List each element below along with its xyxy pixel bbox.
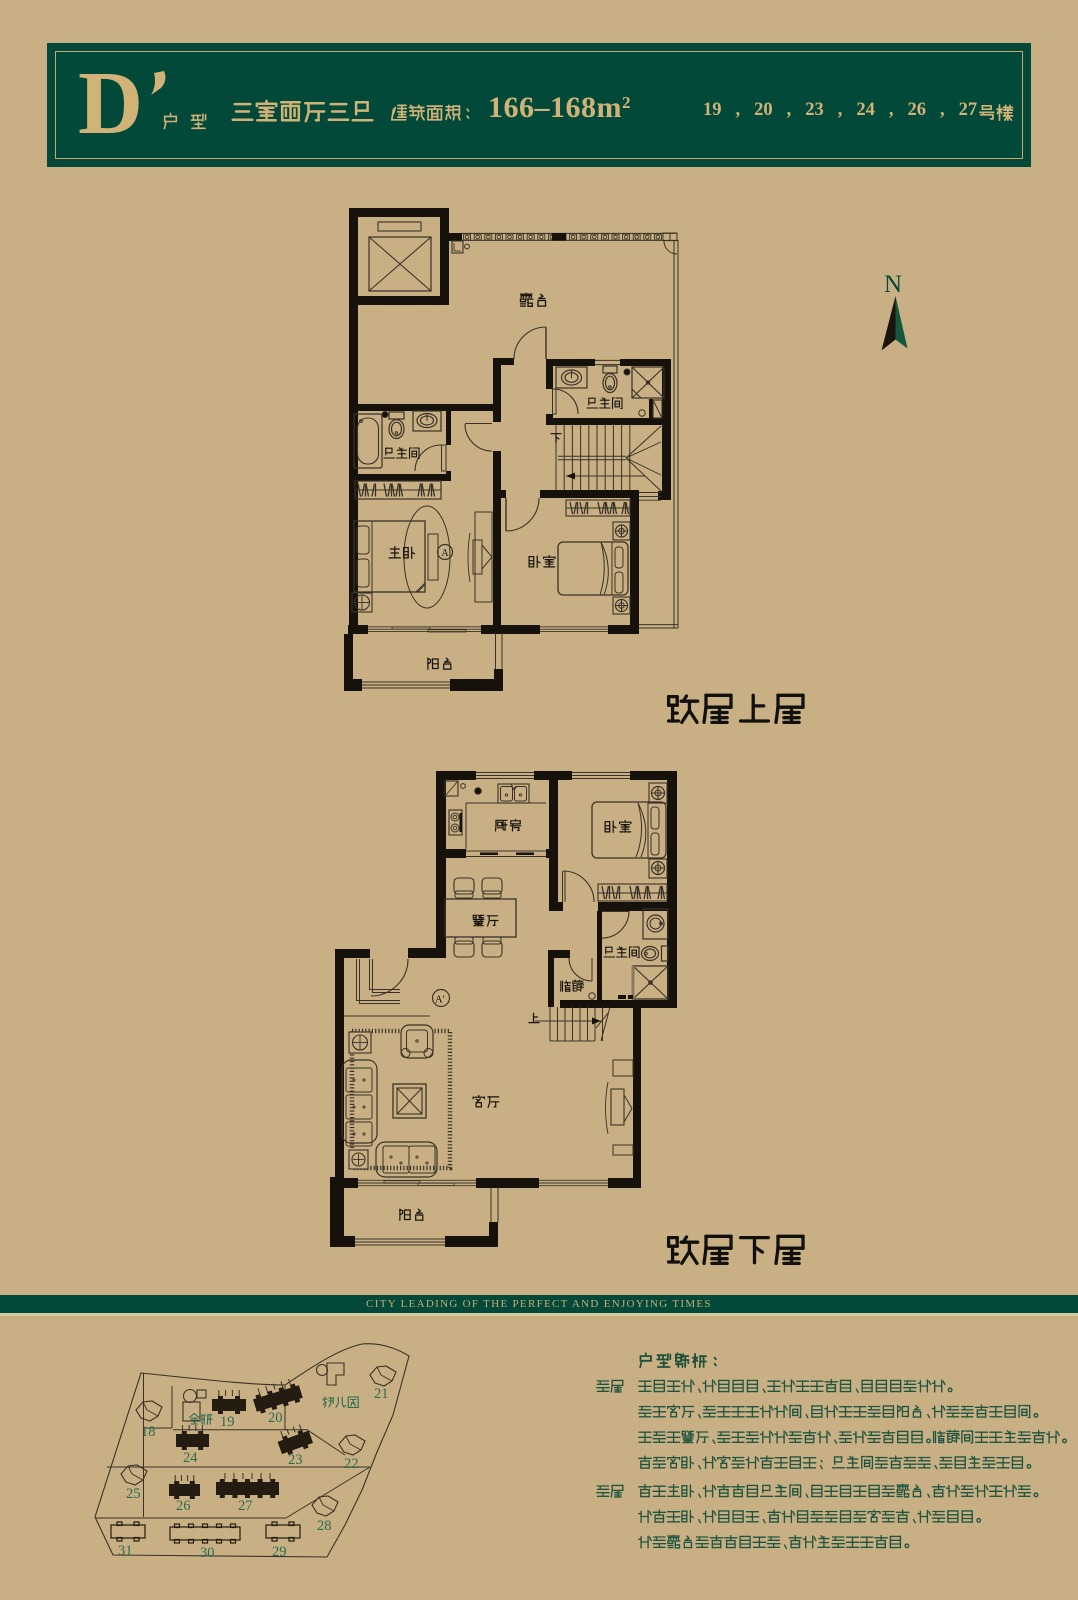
svg-text:30: 30	[200, 1545, 215, 1561]
svg-text:23: 23	[288, 1452, 303, 1468]
svg-text:N: N	[884, 271, 902, 298]
svg-text:24: 24	[183, 1450, 198, 1466]
svg-text:A′: A′	[435, 995, 445, 1006]
svg-text:29: 29	[272, 1544, 287, 1560]
svg-text:26: 26	[176, 1498, 191, 1514]
svg-text:21: 21	[374, 1386, 389, 1402]
svg-text:25: 25	[126, 1486, 141, 1502]
svg-text:31: 31	[118, 1543, 133, 1559]
svg-text:A: A	[441, 548, 449, 559]
svg-text:22: 22	[344, 1456, 359, 1472]
svg-text:20: 20	[268, 1410, 283, 1426]
svg-text:27: 27	[238, 1498, 253, 1514]
svg-text:28: 28	[317, 1518, 332, 1534]
svg-text:18: 18	[141, 1424, 156, 1440]
svg-text:19: 19	[220, 1414, 235, 1430]
